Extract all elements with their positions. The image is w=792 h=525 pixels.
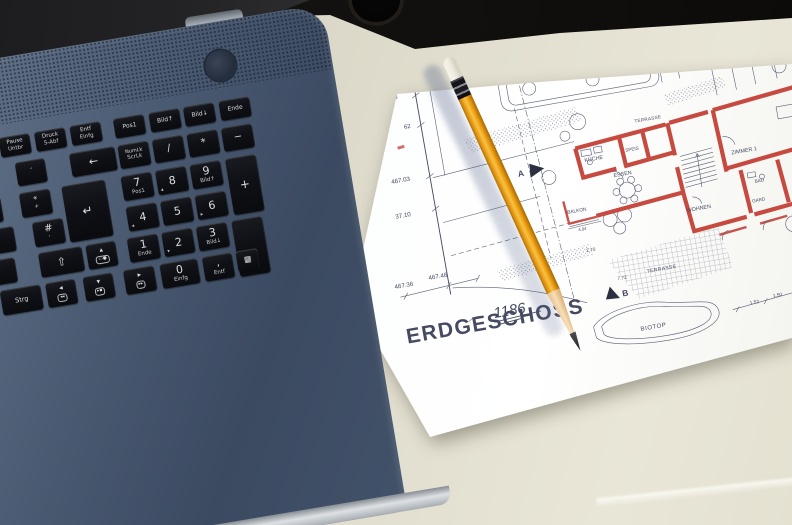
- biotop-label: BIOTOP: [640, 322, 667, 332]
- key-glyph: −: [221, 123, 256, 152]
- key-glyph: ,Entf: [202, 252, 236, 282]
- key-6: 6▸: [195, 190, 230, 220]
- key-9: 9Bild↑: [189, 160, 224, 190]
- dim-4-04: 4.04: [578, 226, 588, 232]
- key-glyph: #': [32, 218, 67, 248]
- key-1: 1Ende: [127, 233, 162, 263]
- key-glyph: ▴▭●: [85, 240, 119, 270]
- key-glyph: /: [152, 135, 187, 164]
- room-bad: BAD: [754, 177, 765, 184]
- room-gard: GARD: [752, 196, 767, 203]
- terrace: TERRASSE TERRASSE: [584, 106, 736, 303]
- dim-label: 62: [404, 124, 412, 131]
- key-glyph: ◂◂◂: [45, 279, 79, 309]
- room-speis: SPEIS: [625, 146, 639, 153]
- key-glyph: ▸▸▸: [123, 265, 158, 295]
- key-7: 7Pos1: [120, 171, 155, 201]
- key-glyph: ▦: [235, 248, 260, 272]
- section-b: B: [621, 288, 629, 299]
- key-numlk: NumLkScrLk: [117, 141, 152, 170]
- key-2: 2▾: [161, 227, 196, 257]
- key-glyph: ↵: [61, 179, 114, 242]
- key-8: 8▴: [155, 166, 190, 196]
- key-glyph: ▾▸▪: [82, 272, 116, 302]
- photo-scene: 466.48 62 467.03 37.10 467.36 467.46: [0, 0, 792, 525]
- house-walls: [550, 82, 792, 267]
- elevation-label: 466.48: [378, 94, 398, 104]
- section-a: A: [517, 168, 525, 179]
- key-5: 5: [160, 196, 195, 226]
- terrace-label-2: TERRASSE: [634, 114, 662, 124]
- room-balkon: BALKON: [567, 206, 588, 215]
- key-glyph: *: [186, 129, 221, 158]
- biotop-pond: BIOTOP: [591, 290, 722, 352]
- stairs: [680, 148, 719, 190]
- elevation-label: 467.36: [394, 281, 414, 291]
- room-zimmer1: ZIMMER 1: [731, 146, 757, 156]
- key-glyph: ´: [15, 158, 49, 187]
- room-wohnen: WOHNEN: [686, 204, 711, 214]
- key-4: 4◂: [125, 202, 160, 232]
- dim-label: 37.10: [395, 211, 412, 221]
- elevation-label: 467.46: [428, 272, 448, 282]
- key-glyph: *+: [19, 188, 54, 218]
- elevation-label: 467.03: [391, 176, 411, 186]
- key-3: 3Bild↓: [196, 222, 231, 252]
